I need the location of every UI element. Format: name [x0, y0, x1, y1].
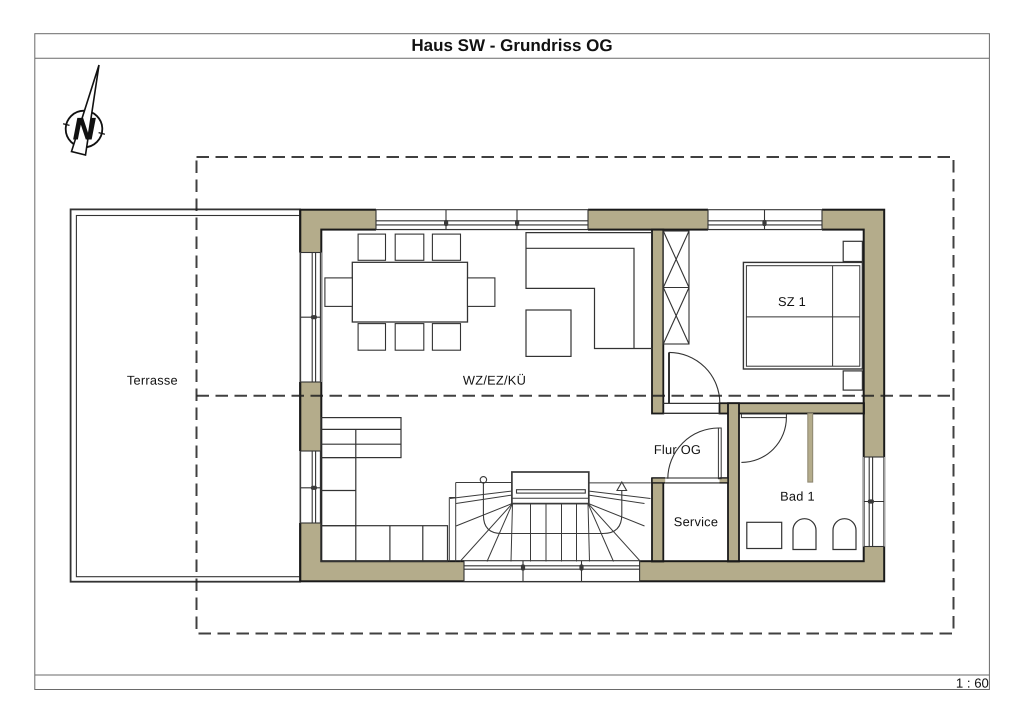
svg-text:Bad 1: Bad 1	[780, 489, 815, 504]
svg-text:1 : 60: 1 : 60	[956, 676, 989, 691]
svg-text:SZ 1: SZ 1	[778, 294, 806, 309]
svg-text:Haus SW - Grundriss OG: Haus SW - Grundriss OG	[411, 36, 612, 55]
svg-text:Service: Service	[674, 514, 718, 529]
svg-text:Terrasse: Terrasse	[127, 373, 178, 388]
svg-text:WZ/EZ/KÜ: WZ/EZ/KÜ	[463, 373, 526, 388]
svg-text:N: N	[73, 113, 96, 146]
svg-text:Flur OG: Flur OG	[654, 442, 701, 457]
